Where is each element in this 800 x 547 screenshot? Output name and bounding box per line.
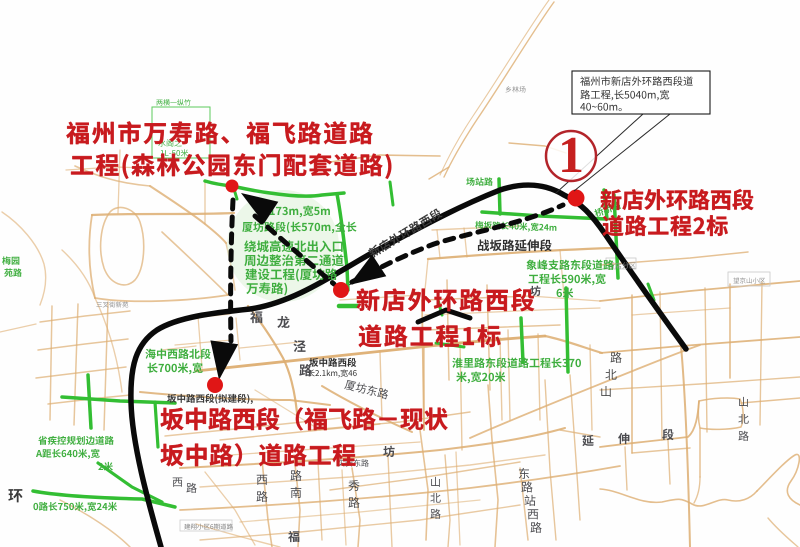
svg-text:1: 1 bbox=[558, 127, 584, 184]
